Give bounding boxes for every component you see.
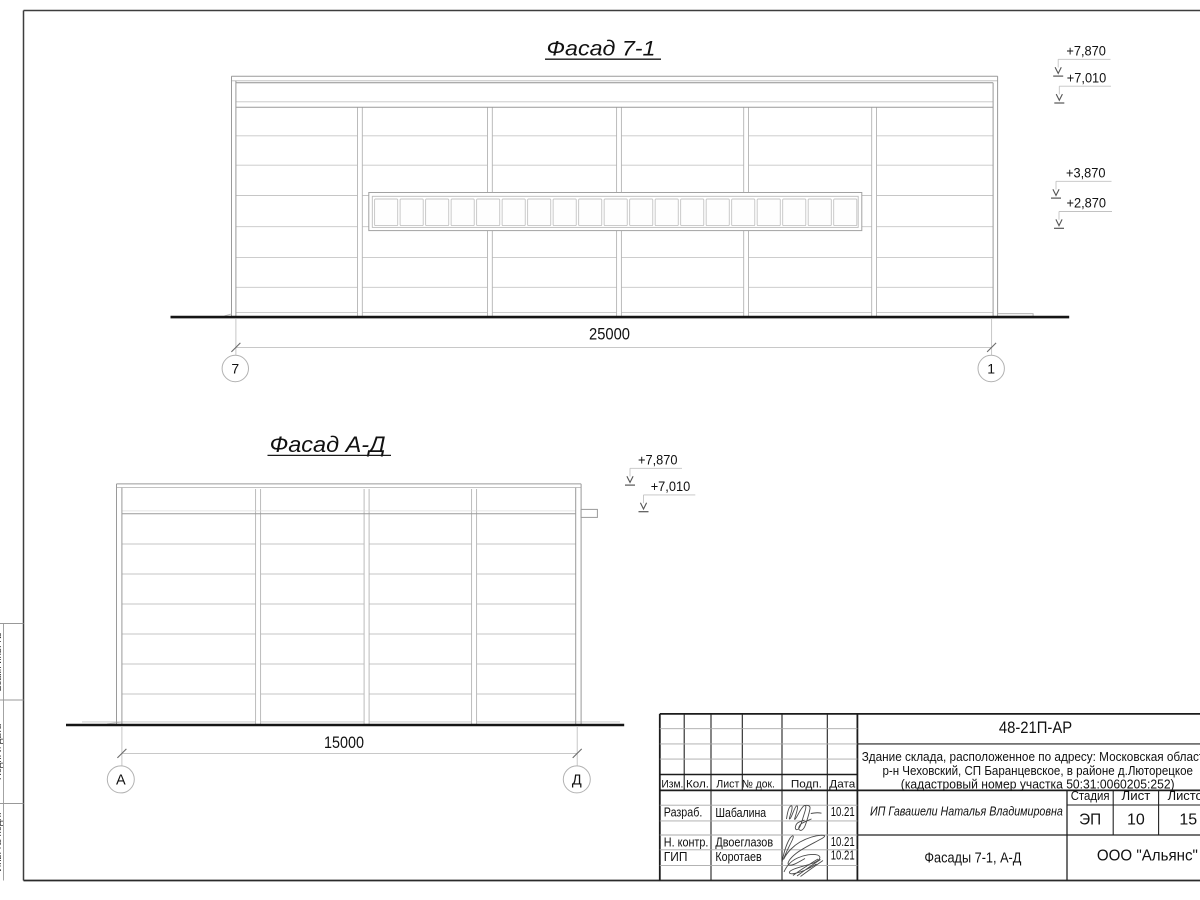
svg-text:10.21: 10.21	[831, 849, 855, 863]
svg-text:Фасад 7-1: Фасад 7-1	[547, 37, 656, 61]
svg-text:10.21: 10.21	[831, 835, 855, 849]
svg-text:ГИП: ГИП	[664, 850, 688, 864]
svg-text:10: 10	[1127, 812, 1145, 829]
svg-text:+7,870: +7,870	[638, 453, 678, 468]
svg-text:ИП Гавашели Наталья Владимиров: ИП Гавашели Наталья Владимировна	[870, 804, 1063, 819]
svg-text:ЭП: ЭП	[1079, 812, 1101, 829]
svg-text:+7,870: +7,870	[1066, 44, 1106, 59]
svg-text:№ док.: № док.	[742, 778, 775, 790]
svg-text:1: 1	[987, 361, 995, 377]
svg-text:Фасад А-Д: Фасад А-Д	[270, 432, 386, 457]
svg-text:+7,010: +7,010	[651, 479, 691, 494]
svg-text:Здание склада, расположенное п: Здание склада, расположенное по адресу: …	[862, 749, 1200, 764]
svg-text:25000: 25000	[589, 326, 630, 344]
svg-text:+2,870: +2,870	[1067, 196, 1107, 211]
svg-text:7: 7	[231, 361, 239, 377]
svg-text:Листов: Листов	[1168, 789, 1200, 803]
svg-text:Взам. инв. №: Взам. инв. №	[0, 633, 4, 692]
svg-text:+7,010: +7,010	[1067, 70, 1107, 85]
svg-text:Двоеглазов: Двоеглазов	[715, 835, 773, 849]
svg-text:Изм.: Изм.	[661, 778, 683, 790]
svg-text:Инв. № подл.: Инв. № подл.	[0, 812, 4, 871]
svg-text:Подп. и дата: Подп. и дата	[0, 723, 4, 780]
svg-text:Д: Д	[572, 773, 582, 789]
svg-text:А: А	[116, 773, 126, 789]
svg-text:Фасады 7-1, А-Д: Фасады 7-1, А-Д	[924, 849, 1021, 866]
svg-text:10.21: 10.21	[831, 805, 855, 819]
svg-text:+3,870: +3,870	[1066, 166, 1106, 181]
svg-text:Кол.: Кол.	[686, 778, 709, 790]
svg-text:Коротаев: Коротаев	[715, 850, 762, 864]
svg-text:Подп.: Подп.	[791, 778, 822, 790]
svg-text:Н. контр.: Н. контр.	[664, 835, 709, 849]
svg-text:15000: 15000	[324, 733, 364, 752]
svg-text:48-21П-АР: 48-21П-АР	[999, 719, 1072, 737]
svg-text:ООО "Альянс": ООО "Альянс"	[1097, 848, 1198, 865]
svg-text:Дата: Дата	[829, 778, 856, 790]
svg-text:Лист: Лист	[1122, 789, 1151, 803]
svg-text:Шабалина: Шабалина	[715, 806, 766, 820]
svg-text:Разраб.: Разраб.	[664, 806, 703, 820]
svg-text:15: 15	[1179, 812, 1197, 829]
svg-text:Лист: Лист	[716, 778, 739, 790]
svg-text:Стадия: Стадия	[1071, 789, 1110, 803]
